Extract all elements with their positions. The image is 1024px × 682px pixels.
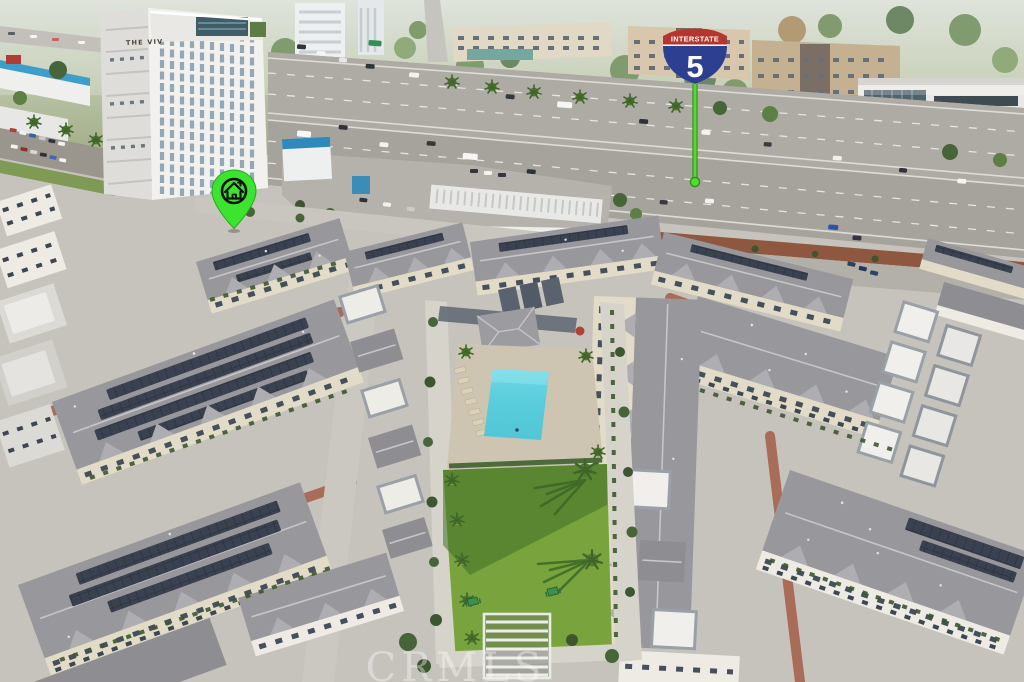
mls-watermark: CRMLS bbox=[366, 645, 547, 682]
tower-sign: THE VIV bbox=[126, 38, 164, 47]
shield-route-number: 5 bbox=[686, 49, 703, 84]
aerial-scene: THE VIV bbox=[0, 0, 1024, 682]
shield-interstate-label: INTERSTATE bbox=[671, 35, 719, 44]
aerial-photo-townhome-community: THE VIV bbox=[0, 0, 1024, 682]
courtyard bbox=[399, 300, 642, 678]
